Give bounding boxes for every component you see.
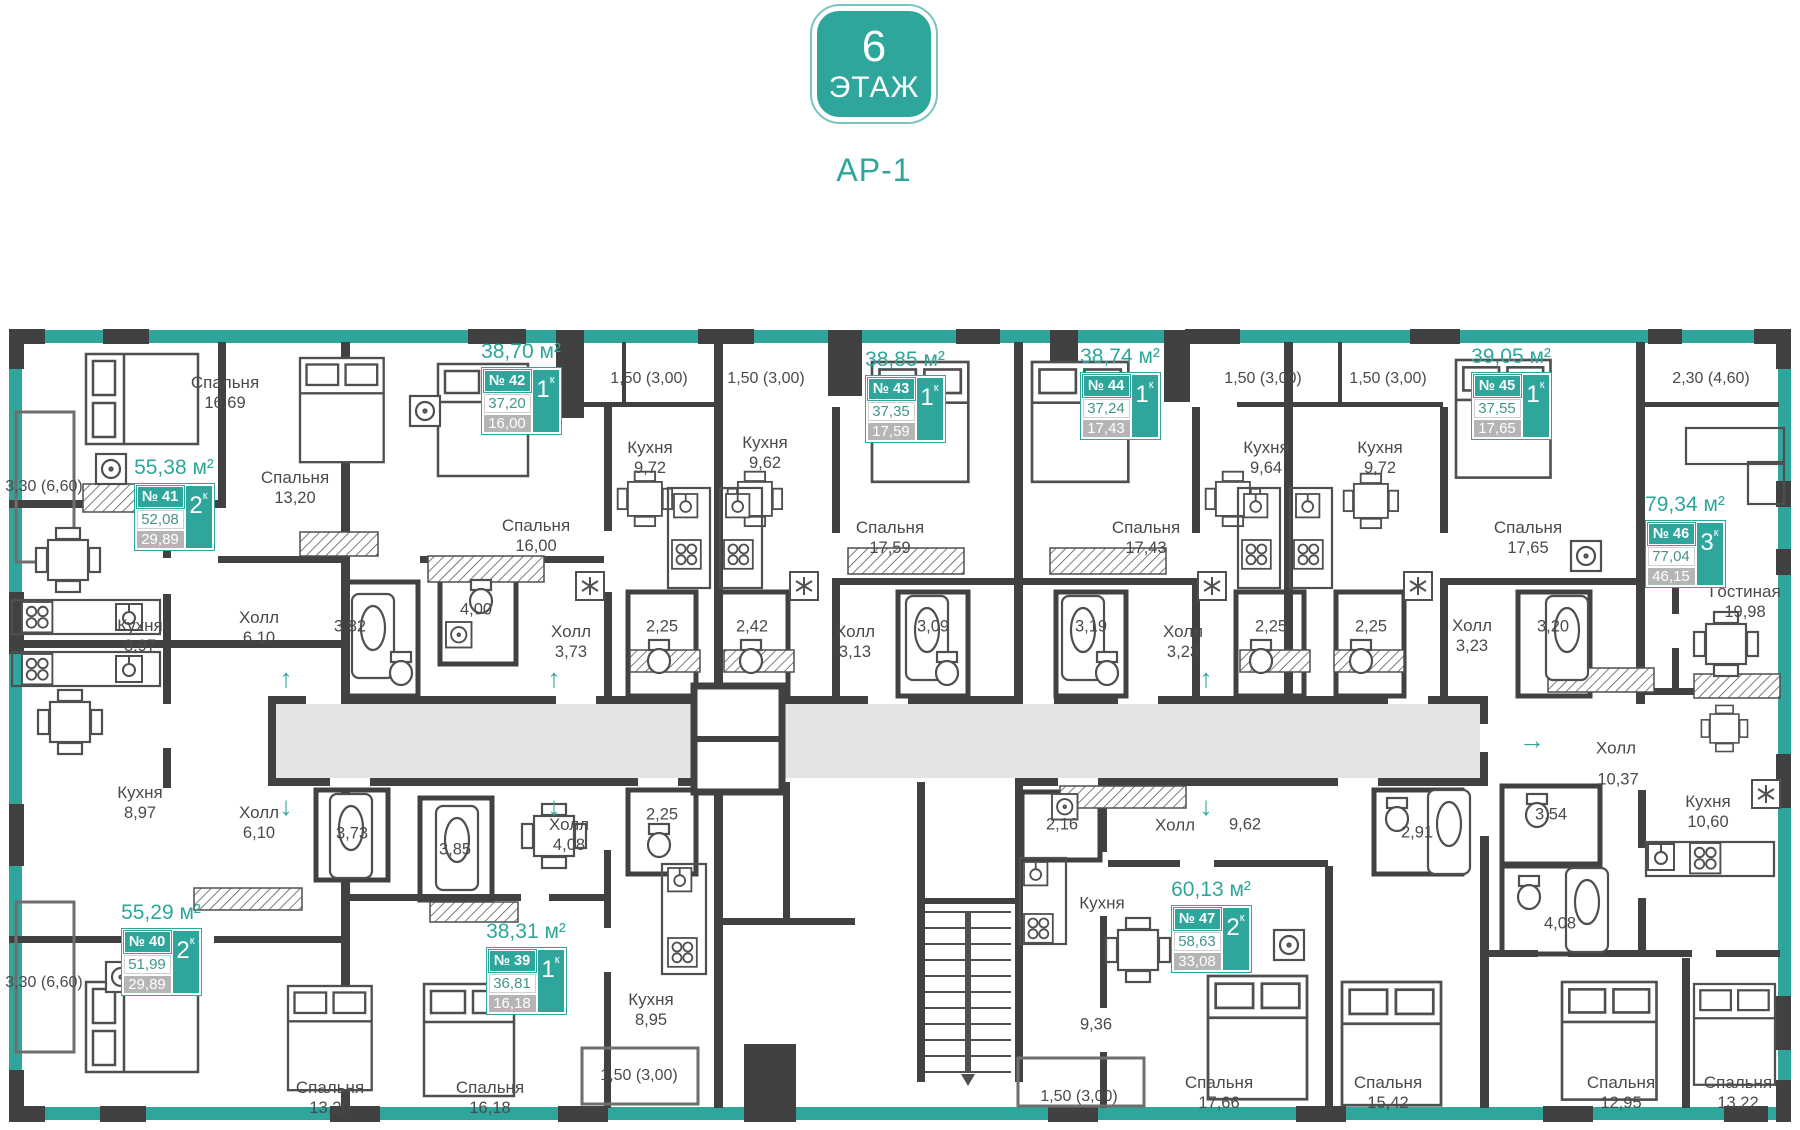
room-label: Кухня9,72: [1357, 437, 1403, 479]
apartment-total-area: 39,05 м²: [1471, 345, 1551, 369]
room-label: Спальня13,22: [1704, 1072, 1772, 1114]
direction-arrow: ↓: [1200, 793, 1213, 819]
room-label: Холл6,10: [239, 607, 279, 649]
room-name: Кухня: [628, 989, 674, 1010]
room-label: Спальня17,65: [1494, 517, 1562, 559]
room-label: Спальня17,43: [1112, 517, 1180, 559]
room-name: Кухня: [1243, 437, 1289, 458]
area-value: 3,54: [1535, 806, 1567, 825]
apartment-card[interactable]: 38,85 м²№ 4337,3517,591к: [835, 348, 975, 443]
staircase: [925, 912, 1011, 1086]
apartment-total-area: 38,74 м²: [1080, 345, 1160, 369]
room-label: Спальня13,20: [261, 467, 329, 509]
apartment-total-area: 55,29 м²: [121, 901, 201, 925]
apartment-card-box: № 4437,2417,431к: [1080, 372, 1161, 440]
apartment-card-box: № 3936,8116,181к: [486, 947, 567, 1015]
direction-arrow: ↓: [548, 793, 561, 819]
apartment-number: № 44: [1083, 375, 1130, 397]
room-label: Кухня9,64: [1243, 437, 1289, 479]
apartment-card-box: № 4051,9929,892к: [121, 928, 202, 996]
apartment-area-living: 37,35: [868, 402, 915, 421]
dimension-label: 3,30 (6,60): [5, 974, 82, 992]
apartment-card-box: № 4758,6333,082к: [1171, 905, 1252, 973]
apartment-area-extra: 17,43: [1083, 420, 1130, 437]
room-area: 3,23: [1163, 642, 1203, 663]
room-name: Спальня: [191, 372, 259, 393]
room-name: Спальня: [1587, 1072, 1655, 1093]
apartment-area-extra: 17,59: [868, 423, 915, 440]
room-name: Кухня: [742, 432, 788, 453]
area-value: 3,09: [917, 618, 949, 637]
room-area: 9,64: [1243, 458, 1289, 479]
apartment-number: № 39: [489, 950, 536, 972]
direction-arrow: ↑: [280, 665, 293, 691]
room-label: Холл3,23: [1452, 615, 1492, 657]
room-area: 16,00: [502, 536, 570, 557]
room-name: Спальня: [502, 515, 570, 536]
room-label: Кухня: [1079, 892, 1125, 913]
area-value: 9,62: [1229, 816, 1261, 835]
apartment-rooms-count: 2к: [1223, 908, 1249, 970]
area-value: 9,36: [1080, 1016, 1112, 1035]
apartment-card-box: № 4237,2016,001к: [481, 367, 562, 435]
room-name: Холл: [239, 802, 279, 823]
room-area: 3,73: [551, 642, 591, 663]
room-name: Спальня: [1112, 517, 1180, 538]
apartment-total-area: 55,38 м²: [134, 456, 214, 480]
apartment-area-living: 52,08: [137, 510, 184, 529]
room-label: Кухня10,60: [1685, 791, 1731, 833]
room-name: Спальня: [296, 1077, 364, 1098]
room-area: 19,98: [1709, 602, 1780, 623]
apartment-card-box: № 4677,0446,153к: [1645, 520, 1726, 588]
room-name: Кухня: [1357, 437, 1403, 458]
apartment-total-area: 38,70 м²: [481, 340, 561, 364]
area-value: 10,37: [1597, 771, 1638, 790]
apartment-total-area: 79,34 м²: [1645, 493, 1725, 517]
apartment-rooms-count: 1к: [533, 370, 559, 432]
area-value: 2,25: [646, 618, 678, 637]
apartment-number: № 41: [137, 486, 184, 508]
corridor-area: [276, 704, 1480, 778]
apartment-number: № 47: [1174, 908, 1221, 930]
area-value: 2,91: [1401, 824, 1433, 843]
room-name: Спальня: [456, 1077, 524, 1098]
room-label: Спальня15,42: [1354, 1072, 1422, 1114]
apartment-rooms-count: 1к: [1132, 375, 1158, 437]
room-name: Кухня: [117, 615, 163, 636]
apartment-card[interactable]: 39,05 м²№ 4537,5517,651к: [1441, 345, 1581, 440]
room-name: Спальня: [261, 467, 329, 488]
apartment-area-extra: 29,89: [124, 976, 171, 993]
room-area: 9,72: [1357, 458, 1403, 479]
room-label: Спальня12,95: [1587, 1072, 1655, 1114]
apartment-area-extra: 17,65: [1474, 420, 1521, 437]
room-label: Кухня9,62: [742, 432, 788, 474]
room-area: 13,20: [261, 488, 329, 509]
room-label: Холл: [1596, 737, 1636, 758]
room-area: 17,43: [1112, 538, 1180, 559]
room-name: Кухня: [1685, 791, 1731, 812]
apartment-rooms-count: 2к: [186, 486, 212, 548]
area-value: 2,25: [1255, 618, 1287, 637]
elevator-block: [694, 686, 782, 792]
room-area: 12,95: [1587, 1093, 1655, 1114]
room-name: Спальня: [1704, 1072, 1772, 1093]
room-label: Холл3,23: [1163, 621, 1203, 663]
area-value: 2,16: [1046, 816, 1078, 835]
apartment-number: № 40: [124, 931, 171, 953]
dimension-label: 1,50 (3,00): [1224, 370, 1301, 388]
room-area: 9,62: [742, 453, 788, 474]
area-value: 4,08: [1544, 915, 1576, 934]
apartment-number: № 45: [1474, 375, 1521, 397]
room-area: 15,42: [1354, 1093, 1422, 1114]
floorplan-drawing: [0, 0, 1800, 1130]
apartment-rooms-count: 1к: [538, 950, 564, 1012]
direction-arrow: ↑: [1200, 665, 1213, 691]
apartment-number: № 43: [868, 378, 915, 400]
room-name: Спальня: [1494, 517, 1562, 538]
room-area: 13,20: [296, 1098, 364, 1119]
room-area: 6,10: [239, 628, 279, 649]
dimension-label: 1,50 (3,00): [600, 1067, 677, 1085]
apartment-area-extra: 16,00: [484, 415, 531, 432]
area-value: 2,25: [646, 806, 678, 825]
room-name: Холл: [551, 621, 591, 642]
direction-arrow: →: [1519, 727, 1545, 753]
room-area: 4,08: [549, 835, 589, 856]
area-value: 3,82: [334, 618, 366, 637]
apartment-rooms-count: 3к: [1697, 523, 1723, 585]
room-area: 16,69: [191, 393, 259, 414]
area-value: 2,25: [1355, 618, 1387, 637]
room-name: Спальня: [856, 517, 924, 538]
room-name: Холл: [835, 621, 875, 642]
dimension-label: 1,50 (3,00): [1349, 370, 1426, 388]
area-value: 3,19: [1075, 618, 1107, 637]
floorplan-page: 6 ЭТАЖ АР-1: [0, 0, 1800, 1130]
apartment-total-area: 38,31 м²: [486, 920, 566, 944]
apartment-area-living: 51,99: [124, 955, 171, 974]
room-label: Кухня9,72: [627, 437, 673, 479]
room-name: Кухня: [117, 782, 163, 803]
room-area: 17,59: [856, 538, 924, 559]
apartment-area-living: 58,63: [1174, 932, 1221, 951]
apartment-card[interactable]: 38,74 м²№ 4437,2417,431к: [1050, 345, 1190, 440]
room-name: Холл: [239, 607, 279, 628]
apartment-area-extra: 29,89: [137, 531, 184, 548]
apartment-card[interactable]: 60,13 м²№ 4758,6333,082к: [1141, 878, 1281, 973]
room-label: Спальня17,59: [856, 517, 924, 559]
room-name: Кухня: [627, 437, 673, 458]
room-name: Спальня: [1354, 1072, 1422, 1093]
apartment-total-area: 60,13 м²: [1171, 878, 1251, 902]
room-area: 16,18: [456, 1098, 524, 1119]
apartment-card[interactable]: 38,70 м²№ 4237,2016,001к: [451, 340, 591, 435]
direction-arrow: ↑: [548, 665, 561, 691]
room-label: Кухня8,95: [628, 989, 674, 1031]
apartment-number: № 42: [484, 370, 531, 392]
dimension-label: 1,50 (3,00): [610, 370, 687, 388]
room-label: Спальня16,18: [456, 1077, 524, 1119]
apartment-card[interactable]: 55,38 м²№ 4152,0829,892к: [104, 456, 244, 551]
dimension-label: 2,30 (4,60): [1672, 370, 1749, 388]
area-value: 4,00: [460, 601, 492, 620]
room-name: Холл: [1163, 621, 1203, 642]
area-value: 3,73: [336, 825, 368, 844]
room-area: 17,66: [1185, 1093, 1253, 1114]
room-label: Спальня13,20: [296, 1077, 364, 1119]
apartment-total-area: 38,85 м²: [865, 348, 945, 372]
room-name: Холл: [1452, 615, 1492, 636]
apartment-number: № 46: [1648, 523, 1695, 545]
apartment-card-box: № 4337,3517,591к: [865, 375, 946, 443]
area-value: 3,20: [1537, 618, 1569, 637]
room-area: 6,10: [239, 823, 279, 844]
apartment-card-box: № 4537,5517,651к: [1471, 372, 1552, 440]
room-area: 9,72: [627, 458, 673, 479]
room-area: 3,23: [1452, 636, 1492, 657]
room-area: 10,60: [1685, 812, 1731, 833]
room-label: Спальня16,00: [502, 515, 570, 557]
apartment-area-extra: 46,15: [1648, 568, 1695, 585]
room-area: 13,22: [1704, 1093, 1772, 1114]
dimension-label: 1,50 (3,00): [727, 370, 804, 388]
room-area: 8,97: [117, 803, 163, 824]
room-label: Холл: [1155, 814, 1195, 835]
room-area: 3,13: [835, 642, 875, 663]
apartment-card[interactable]: 55,29 м²№ 4051,9929,892к: [91, 901, 231, 996]
apartment-area-extra: 16,18: [489, 995, 536, 1012]
area-value: 3,85: [439, 841, 471, 860]
area-value: 2,42: [736, 618, 768, 637]
room-label: Спальня17,66: [1185, 1072, 1253, 1114]
room-label: Холл3,73: [551, 621, 591, 663]
room-area: 8,97: [117, 636, 163, 657]
apartment-rooms-count: 1к: [917, 378, 943, 440]
room-label: Холл3,13: [835, 621, 875, 663]
room-name: Спальня: [1185, 1072, 1253, 1093]
room-area: 8,95: [628, 1010, 674, 1031]
dimension-label: 3,30 (6,60): [5, 478, 82, 496]
apartment-area-living: 37,55: [1474, 399, 1521, 418]
room-label: Спальня16,69: [191, 372, 259, 414]
direction-arrow: ↓: [280, 793, 293, 819]
apartment-rooms-count: 2к: [173, 931, 199, 993]
apartment-area-living: 37,20: [484, 394, 531, 413]
apartment-area-extra: 33,08: [1174, 953, 1221, 970]
apartment-card-box: № 4152,0829,892к: [134, 483, 215, 551]
room-area: 17,65: [1494, 538, 1562, 559]
room-label: Кухня8,97: [117, 782, 163, 824]
apartment-area-living: 36,81: [489, 974, 536, 993]
apartment-area-living: 37,24: [1083, 399, 1130, 418]
apartment-card[interactable]: 38,31 м²№ 3936,8116,181к: [456, 920, 596, 1015]
apartment-card[interactable]: 79,34 м²№ 4677,0446,153к: [1615, 493, 1755, 588]
room-label: Холл6,10: [239, 802, 279, 844]
apartment-area-living: 77,04: [1648, 547, 1695, 566]
apartment-rooms-count: 1к: [1523, 375, 1549, 437]
room-label: Кухня8,97: [117, 615, 163, 657]
dimension-label: 1,50 (3,00): [1040, 1088, 1117, 1106]
